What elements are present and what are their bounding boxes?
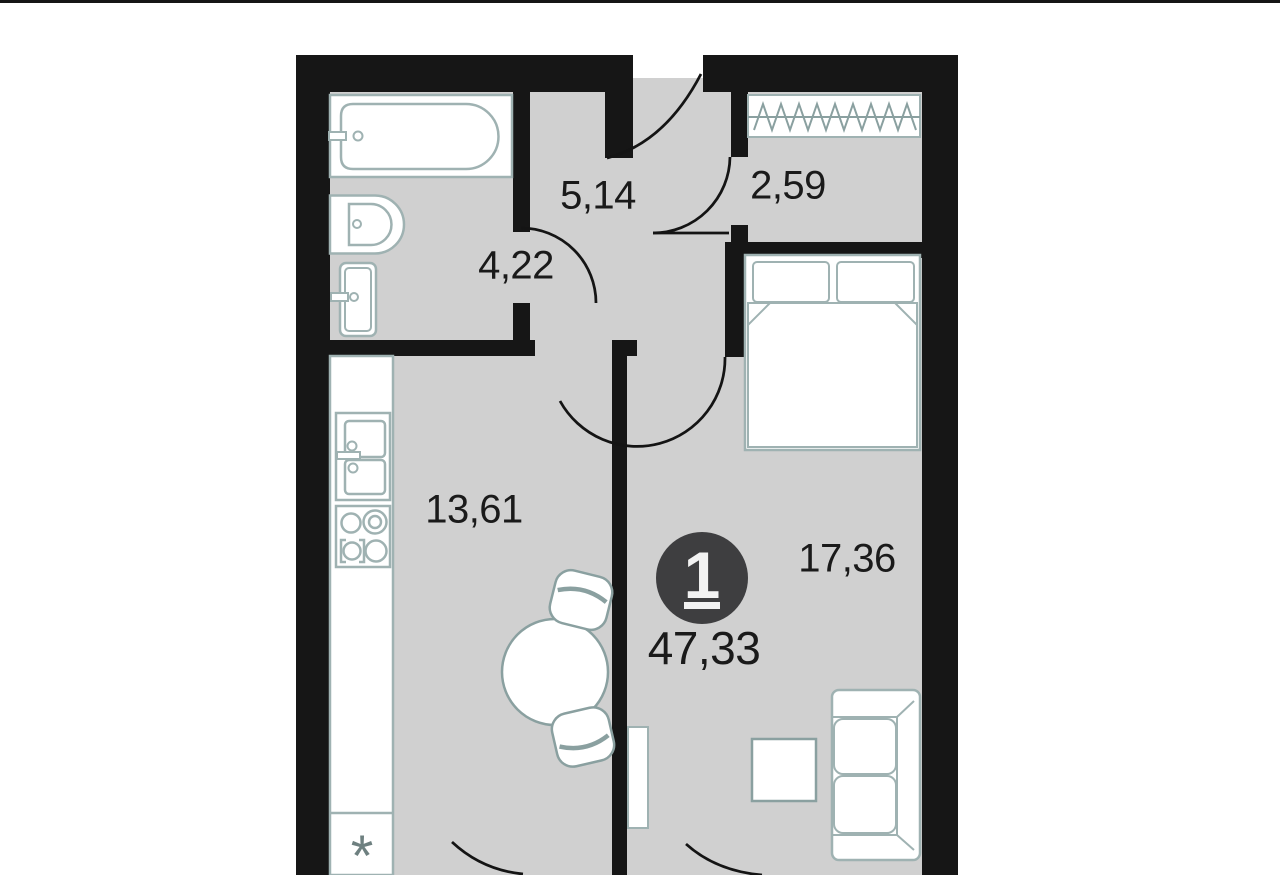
washbasin-icon bbox=[331, 263, 376, 336]
living-balcony-door-swing bbox=[686, 844, 762, 875]
room-label-kitchen: 13,61 bbox=[425, 488, 523, 533]
wardrobe-rail-icon bbox=[748, 95, 920, 137]
room-label-wardrobe: 2,59 bbox=[750, 164, 826, 209]
blanket bbox=[748, 303, 917, 447]
room-count-badge: 1 bbox=[656, 532, 748, 624]
refrigerator-slot-asterisk: * bbox=[351, 824, 374, 875]
room-label-bathroom: 4,22 bbox=[478, 244, 554, 289]
wardrobe-door-swing bbox=[653, 157, 730, 233]
bed-icon bbox=[745, 255, 920, 450]
sofa-icon bbox=[832, 690, 920, 860]
fixtures-layer: * bbox=[0, 0, 1280, 875]
stove-icon bbox=[336, 506, 390, 567]
room-label-living-room: 17,36 bbox=[798, 537, 896, 582]
room-count-number-foot bbox=[684, 602, 720, 609]
pillow bbox=[837, 262, 914, 302]
pillow bbox=[753, 262, 829, 302]
bathtub-icon bbox=[329, 95, 512, 177]
toilet-icon bbox=[330, 196, 404, 254]
washbasin-faucet bbox=[331, 293, 348, 301]
radiator-icon bbox=[628, 727, 648, 828]
kitchen-balcony-door-swing bbox=[452, 842, 523, 874]
bathtub-faucet bbox=[329, 132, 346, 140]
kitchen-sink-icon bbox=[336, 413, 390, 500]
living-room-door-swing bbox=[560, 357, 725, 446]
floorplan-canvas: * bbox=[0, 0, 1280, 875]
sink-faucet bbox=[337, 452, 360, 459]
total-area-label: 47,33 bbox=[648, 621, 761, 675]
entrance-door-swing bbox=[607, 74, 701, 158]
room-label-hallway: 5,14 bbox=[560, 174, 636, 219]
coffee-table-icon bbox=[752, 739, 816, 801]
